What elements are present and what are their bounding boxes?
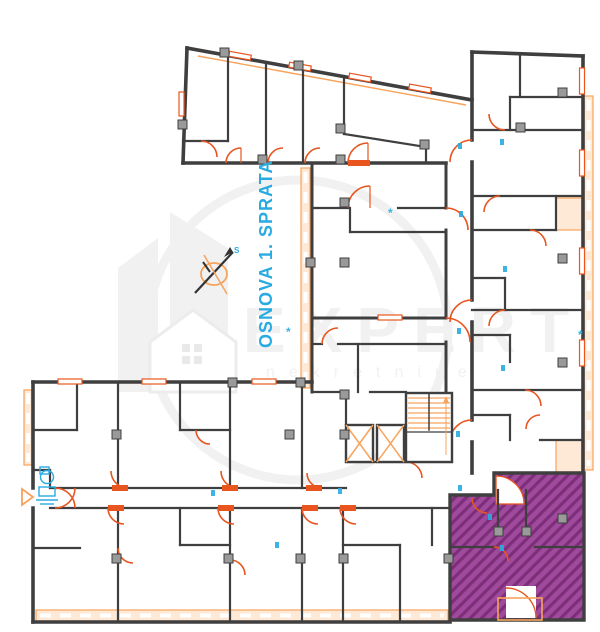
- stair-core: [346, 393, 452, 462]
- svg-text:*: *: [286, 325, 291, 339]
- svg-text:*: *: [388, 206, 393, 220]
- plan-title: OSNOVA 1. SPRATA: [256, 160, 276, 348]
- entrance-arrow-icon: [22, 489, 33, 505]
- floor-plan: EXPERT nekretnine: [0, 0, 600, 632]
- floor-plan-canvas: EXPERT nekretnine: [0, 0, 600, 632]
- svg-text:*: *: [578, 328, 583, 342]
- entrance-stamp: [36, 467, 58, 504]
- buildings-logo-icon: [118, 212, 236, 392]
- north-label: S: [234, 246, 240, 255]
- highlighted-unit[interactable]: [450, 473, 584, 620]
- stairs: [406, 393, 452, 462]
- watermark-brand: EXPERT: [243, 294, 583, 366]
